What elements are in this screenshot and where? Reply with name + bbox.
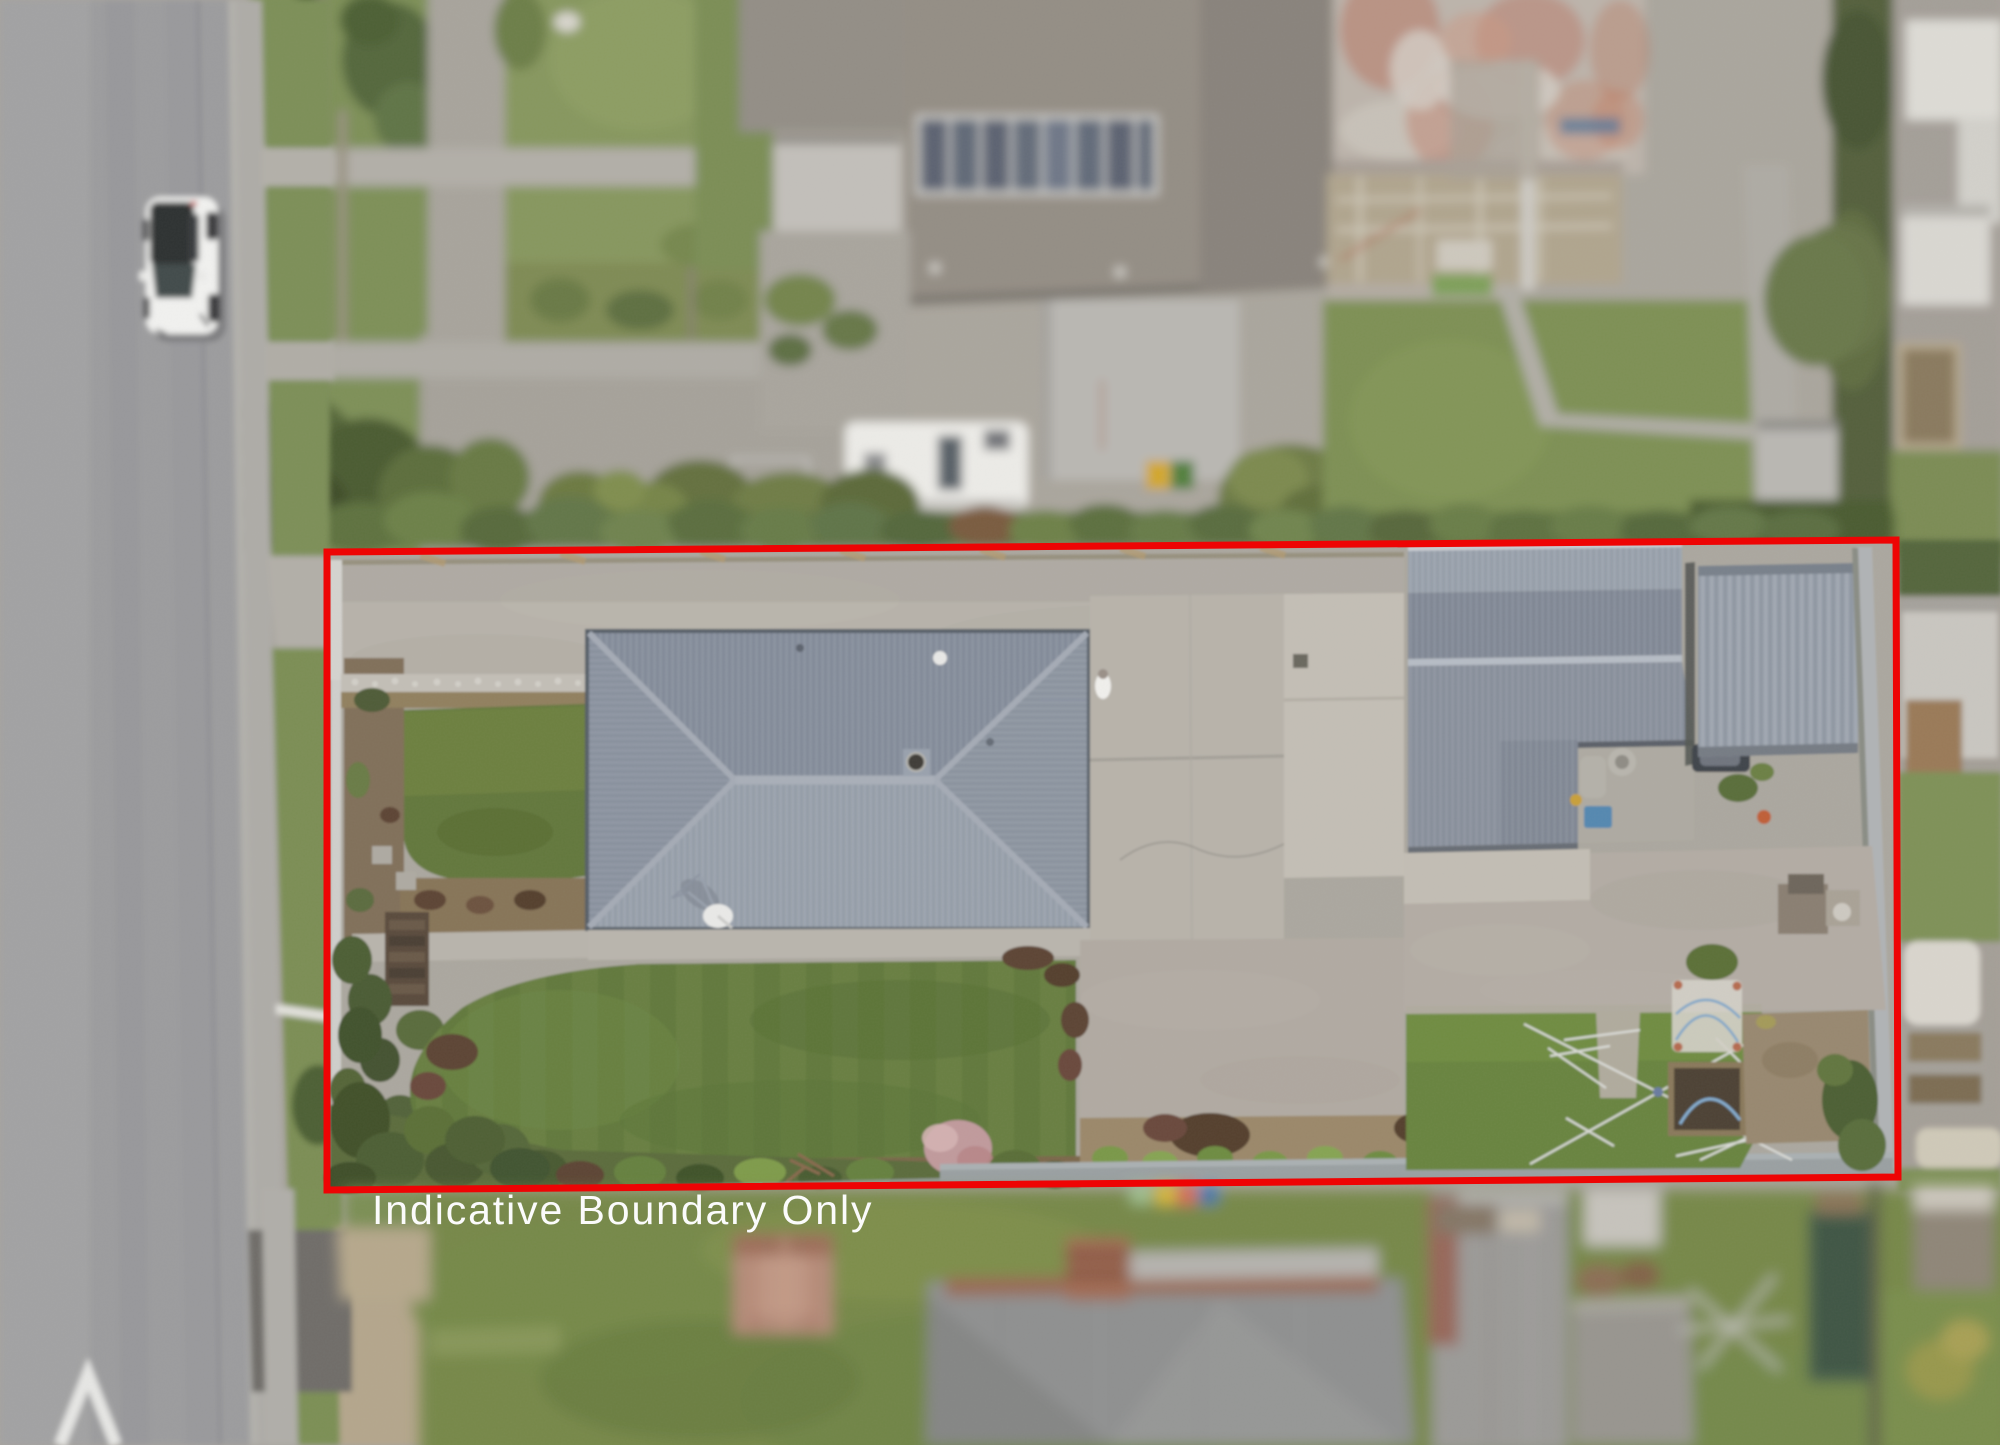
svg-text:Indicative Boundary Only: Indicative Boundary Only bbox=[372, 1187, 873, 1233]
